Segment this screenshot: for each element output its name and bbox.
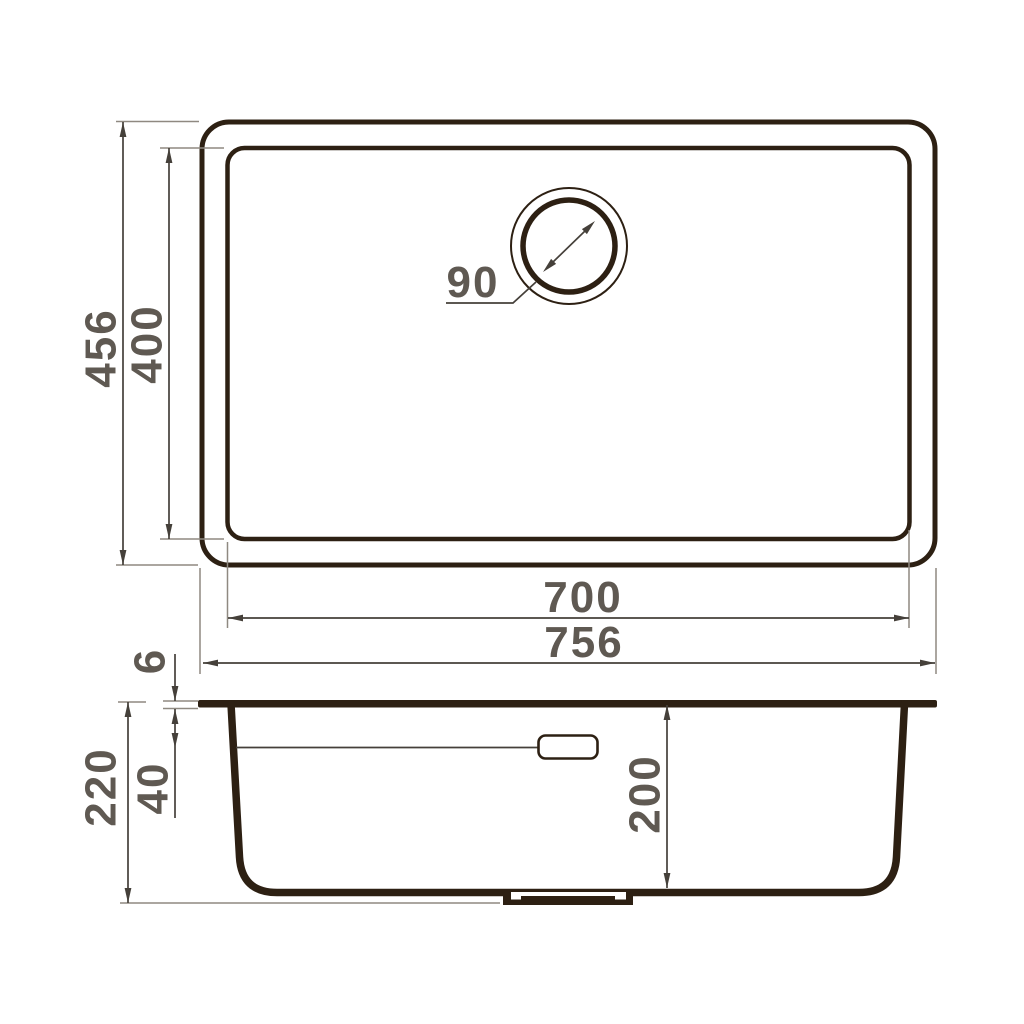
arrowhead <box>166 524 173 539</box>
top-view-dimensions: 456 400 700 756 <box>77 122 937 675</box>
arrowhead <box>920 660 935 667</box>
dim-label-rim-thickness: 6 <box>126 648 175 674</box>
arrowhead <box>120 550 127 565</box>
dim-label-inner-width: 700 <box>543 573 622 622</box>
top-view: 90 <box>202 122 935 565</box>
section-view-dimensions: 220 6 40 200 <box>77 648 671 903</box>
dim-label-bowl-depth: 200 <box>621 754 670 833</box>
sink-bowl-inner-edge <box>228 148 910 539</box>
arrowhead <box>228 615 243 622</box>
arrowhead <box>203 660 218 667</box>
dim-label-inner-height: 400 <box>123 304 172 383</box>
arrowhead <box>125 888 132 903</box>
drain-fitting-flange <box>521 896 615 903</box>
arrowhead <box>120 122 127 137</box>
section-view <box>198 700 937 905</box>
arrowhead <box>166 148 173 163</box>
arrowhead <box>172 686 179 701</box>
arrowhead <box>172 709 179 724</box>
overflow-opening <box>539 736 598 759</box>
arrowhead <box>894 615 909 622</box>
dim-label-outer-height: 456 <box>77 308 126 387</box>
sink-bowl-section <box>231 704 905 893</box>
drain-diameter-arrow-line <box>553 231 585 262</box>
sink-technical-drawing: 90 456 400 700 756 <box>0 0 1024 1024</box>
drawing-canvas: 90 456 400 700 756 <box>0 0 1024 1024</box>
arrowhead <box>172 733 179 748</box>
dim-label-overflow-offset: 40 <box>129 762 178 815</box>
arrowhead <box>664 873 671 888</box>
dim-label-total-height: 220 <box>77 747 126 826</box>
sink-rim-section <box>198 700 937 708</box>
dim-label-outer-width: 756 <box>544 618 623 667</box>
dim-label-drain-diameter: 90 <box>447 258 500 307</box>
arrowhead <box>125 702 132 717</box>
